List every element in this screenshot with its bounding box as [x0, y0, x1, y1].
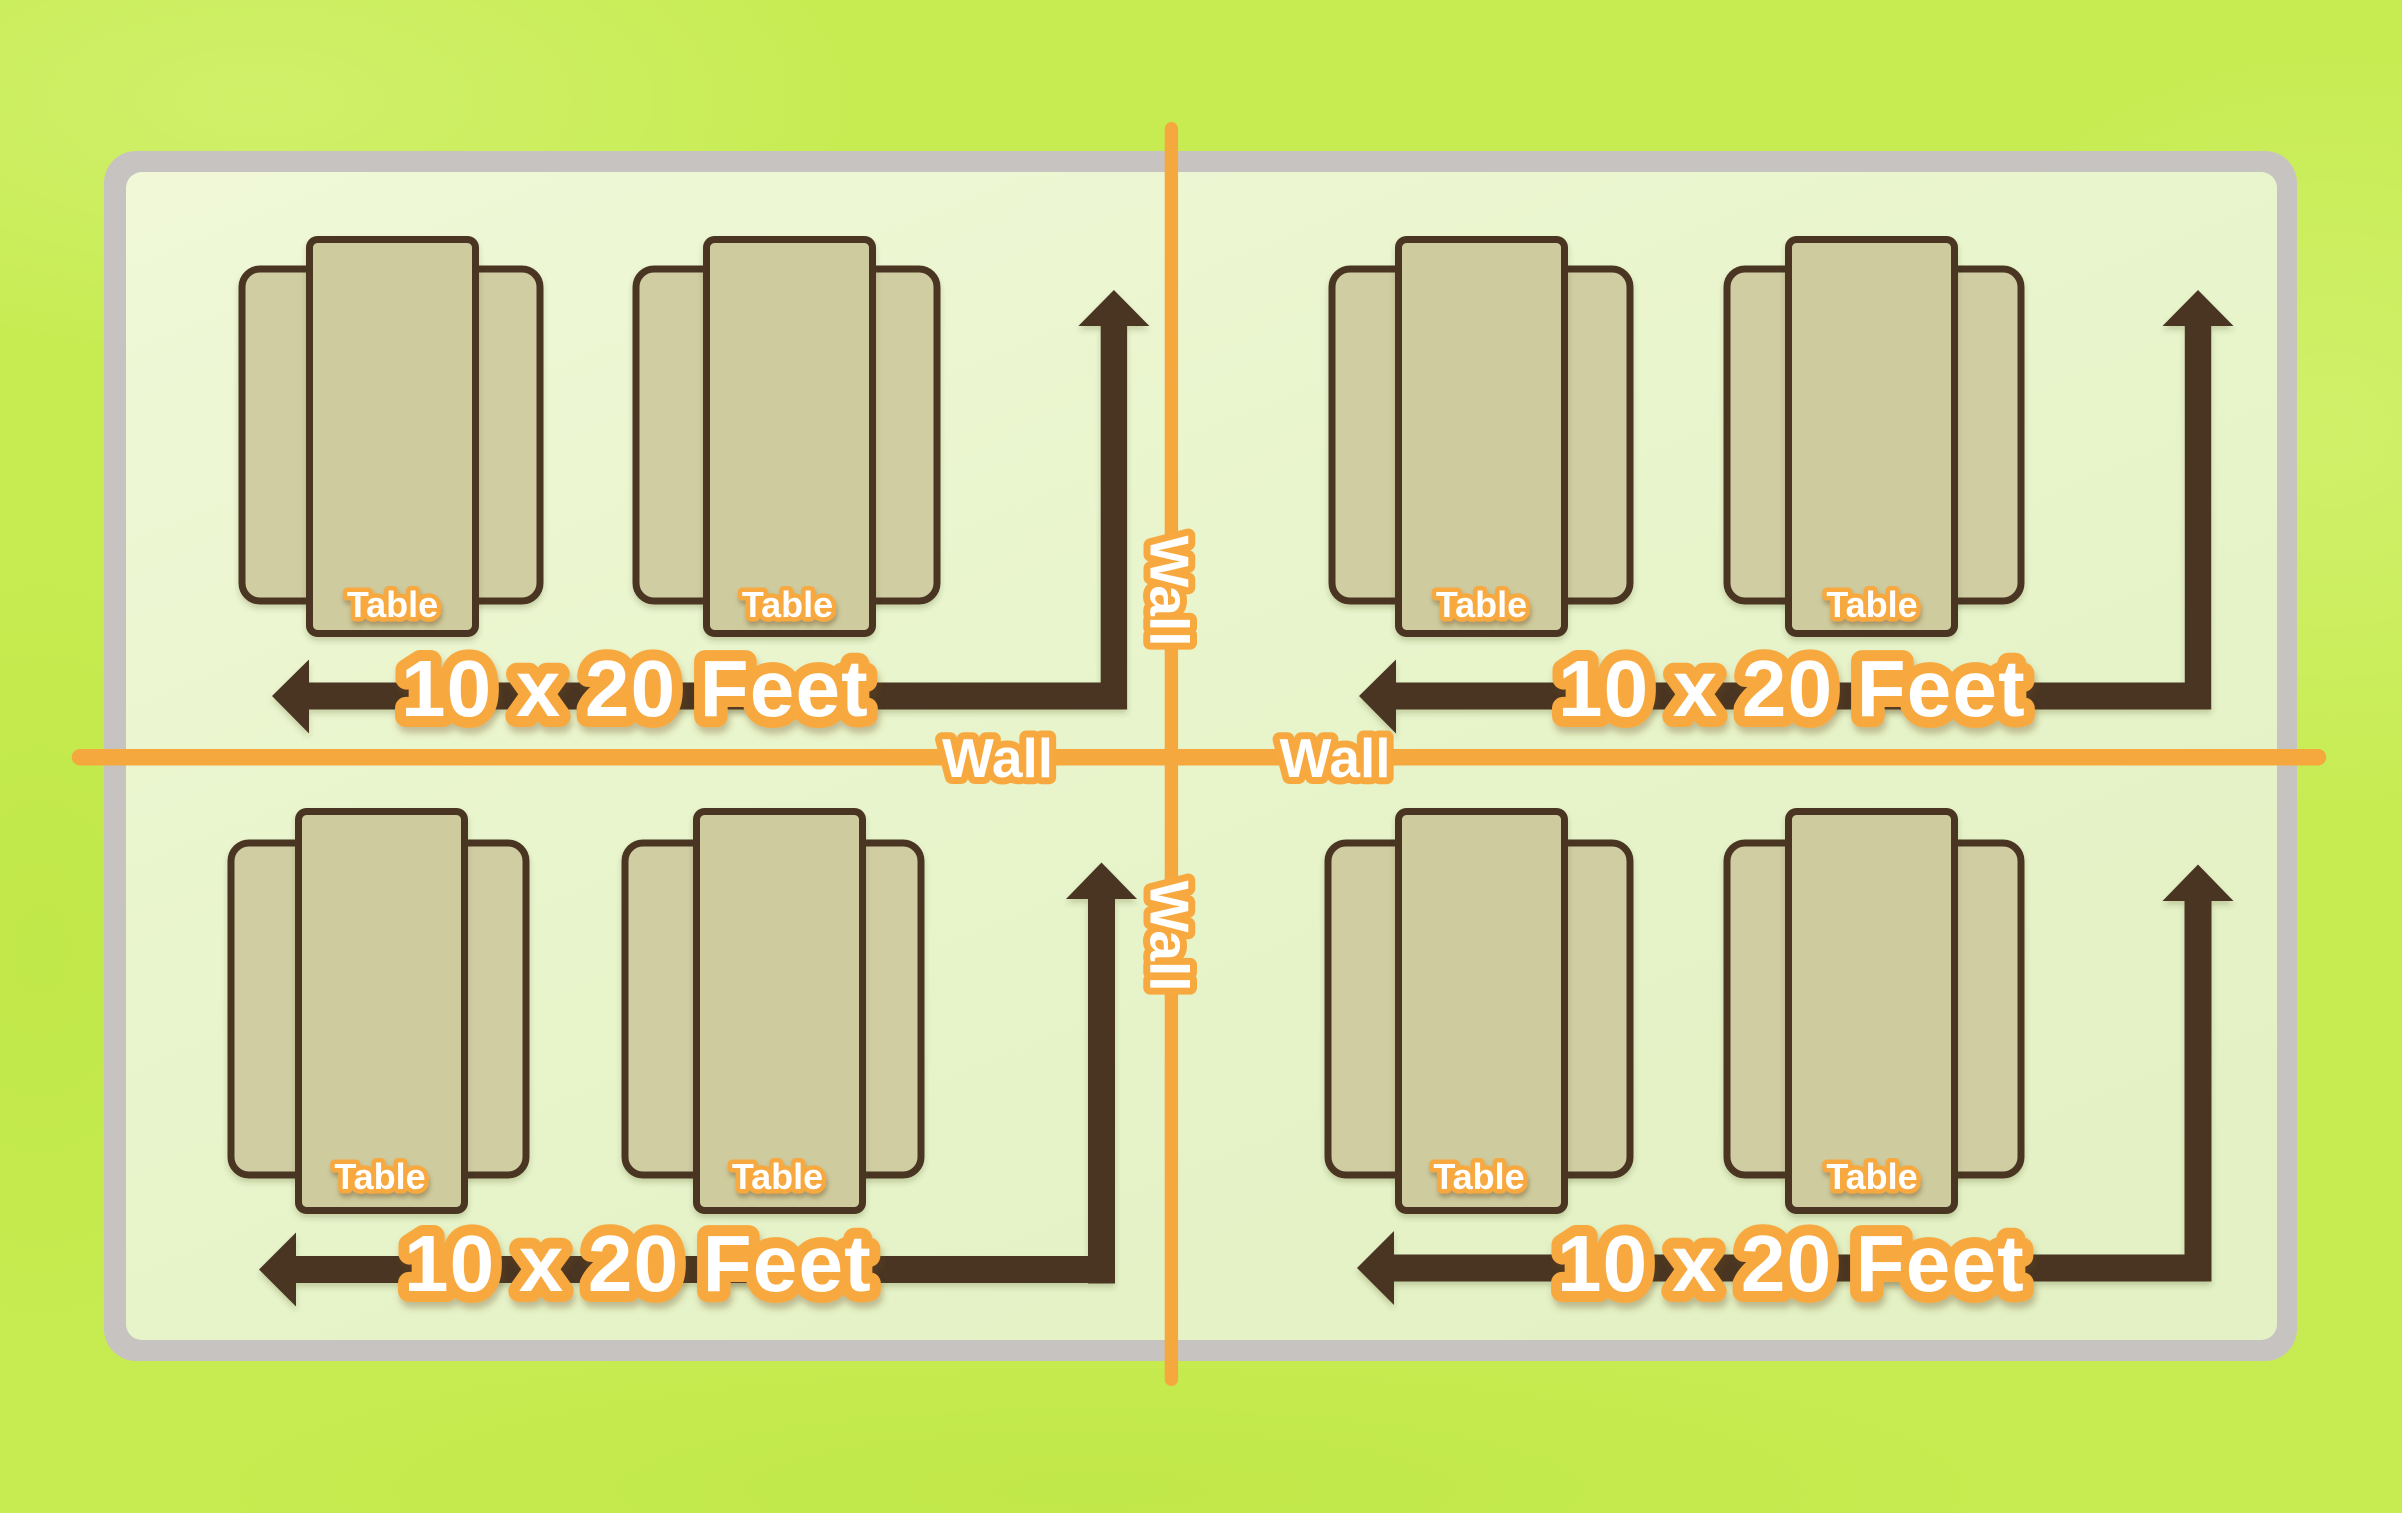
svg-text:Table: Table	[1433, 1156, 1524, 1197]
svg-text:10 x 20 Feet: 10 x 20 Feet	[1558, 644, 2026, 733]
svg-text:Table: Table	[742, 584, 833, 625]
svg-text:Table: Table	[347, 584, 438, 625]
svg-text:Wall: Wall	[1139, 880, 1201, 991]
svg-text:10 x 20 Feet: 10 x 20 Feet	[401, 644, 869, 733]
svg-text:Wall: Wall	[942, 727, 1053, 789]
svg-text:Table: Table	[732, 1156, 823, 1197]
svg-text:10 x 20 Feet: 10 x 20 Feet	[1557, 1219, 2025, 1308]
svg-text:10 x 20 Feet: 10 x 20 Feet	[404, 1219, 872, 1308]
svg-text:Table: Table	[1826, 1156, 1917, 1197]
svg-text:Table: Table	[1436, 584, 1527, 625]
svg-text:Wall: Wall	[1139, 535, 1201, 646]
svg-text:Wall: Wall	[1279, 727, 1390, 789]
svg-text:Table: Table	[1826, 584, 1917, 625]
svg-text:Table: Table	[334, 1156, 425, 1197]
